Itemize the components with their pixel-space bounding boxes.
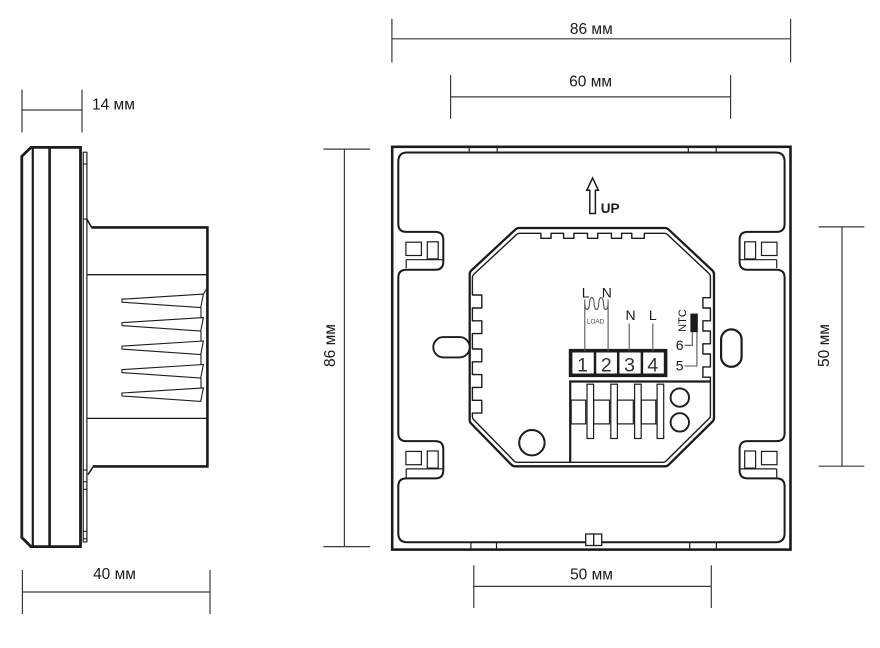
svg-text:L: L bbox=[582, 284, 590, 300]
svg-text:3: 3 bbox=[624, 354, 635, 376]
svg-text:86 мм: 86 мм bbox=[570, 21, 613, 38]
svg-text:2: 2 bbox=[601, 354, 612, 376]
svg-text:N: N bbox=[602, 284, 612, 300]
svg-text:NTC: NTC bbox=[677, 309, 689, 332]
svg-text:LOAD: LOAD bbox=[587, 319, 605, 326]
svg-text:4: 4 bbox=[647, 354, 658, 376]
svg-text:N: N bbox=[626, 307, 636, 323]
svg-text:50 мм: 50 мм bbox=[570, 567, 613, 584]
svg-text:40 мм: 40 мм bbox=[93, 566, 136, 583]
svg-text:50 мм: 50 мм bbox=[816, 324, 833, 367]
svg-text:5: 5 bbox=[676, 357, 684, 373]
svg-text:60 мм: 60 мм bbox=[569, 74, 612, 91]
svg-text:1: 1 bbox=[577, 354, 588, 376]
svg-text:86 мм: 86 мм bbox=[322, 324, 339, 367]
svg-text:UP: UP bbox=[601, 201, 620, 216]
svg-text:L: L bbox=[649, 307, 657, 323]
svg-text:14 мм: 14 мм bbox=[92, 97, 135, 114]
svg-text:6: 6 bbox=[676, 337, 684, 353]
